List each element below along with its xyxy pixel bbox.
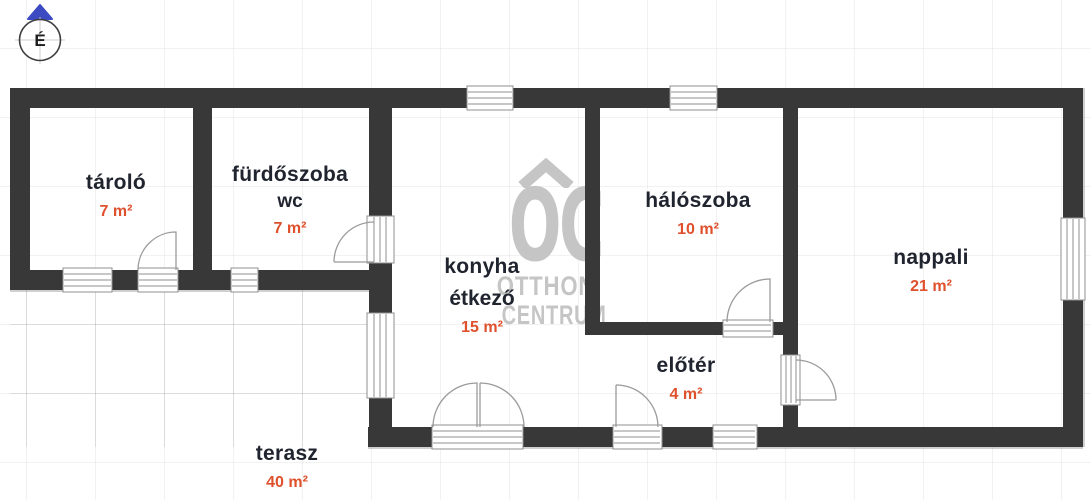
room-name: nappali (893, 245, 969, 271)
room-area: 7 m² (100, 202, 133, 222)
room-area: 15 m² (461, 318, 503, 338)
window-haloszoba-top (670, 86, 717, 110)
room-label-furdoszoba: fürdőszoba wc 7 m² (210, 162, 370, 239)
room-name: hálószoba (645, 188, 750, 214)
room-name: terasz (256, 441, 319, 467)
window-tarolo (63, 268, 112, 292)
window-konyha-terasz (367, 313, 394, 398)
door-eloter-nappali (781, 355, 836, 405)
room-area: 21 m² (910, 277, 952, 297)
room-label-terasz: terasz 40 m² (207, 441, 367, 493)
room-area: 7 m² (274, 219, 307, 239)
room-area: 10 m² (677, 220, 719, 240)
double-door-konyha-terasz (432, 383, 524, 449)
room-name: fürdőszoba (232, 162, 348, 188)
north-compass-icon: É (4, 0, 76, 70)
room-name: előtér (657, 353, 716, 379)
window-eloter-bottom (713, 425, 757, 449)
room-label-konyha: konyha étkező 15 m² (402, 254, 562, 338)
room-name2: étkező (449, 286, 514, 312)
room-name: tároló (86, 170, 146, 196)
floor-plan-canvas: OC OTTHON CENTRUM (0, 0, 1091, 500)
door-haloszoba (723, 279, 773, 337)
window-nappali-right (1061, 218, 1085, 300)
room-label-tarolo: tároló 7 m² (36, 170, 196, 222)
window-furdoszoba (231, 268, 258, 292)
room-label-nappali: nappali 21 m² (851, 245, 1011, 297)
room-label-haloszoba: hálószoba 10 m² (618, 188, 778, 240)
door-tarolo (138, 232, 178, 292)
room-area: 40 m² (266, 473, 308, 493)
room-name2: wc (277, 191, 302, 213)
room-area: 4 m² (670, 385, 703, 405)
room-name: konyha (444, 254, 519, 280)
room-label-eloter: előtér 4 m² (606, 353, 766, 405)
compass-label: É (34, 31, 45, 50)
window-konyha-top (467, 86, 513, 110)
